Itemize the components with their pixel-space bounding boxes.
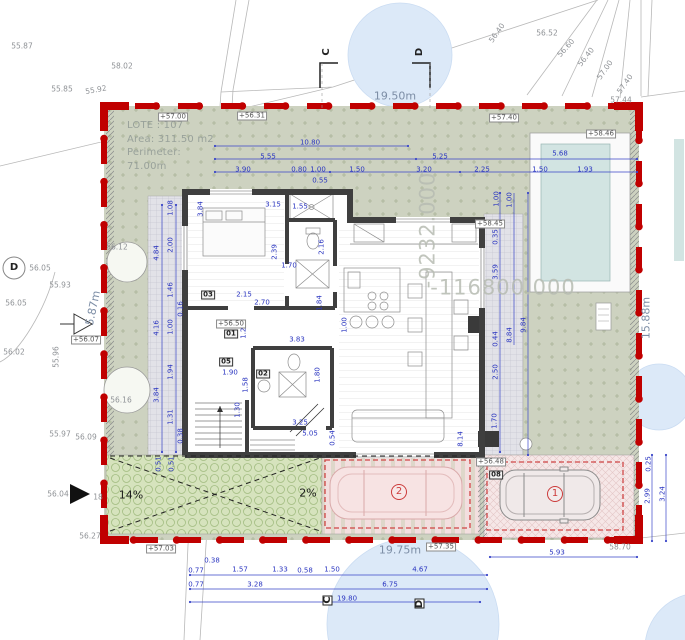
lot-perimeter-label: Perimeter:	[127, 146, 214, 160]
benchmark-icon	[60, 314, 92, 334]
tree-icon	[107, 242, 147, 282]
side-walkway	[148, 196, 183, 455]
lot-area: Area: 311.50 m2	[127, 133, 214, 147]
lot-info: LOTE : 107 Area: 311.50 m2 Perimeter: 71…	[127, 119, 214, 173]
outdoor-sink	[520, 438, 532, 450]
parking-divider-wall	[478, 455, 487, 538]
car-2	[330, 467, 462, 519]
building-footprint	[182, 189, 532, 458]
tree-icon	[645, 593, 685, 640]
bed	[203, 208, 265, 256]
rear-deck	[484, 214, 523, 455]
pool-water	[541, 144, 610, 281]
neighbor-pool	[673, 138, 685, 262]
car-1	[500, 467, 600, 523]
entry-arrow-icon	[70, 484, 90, 504]
grid-bubble-d	[3, 257, 25, 279]
lot-title: LOTE : 107	[127, 119, 214, 133]
site-plan-canvas: LOTE : 107 Area: 311.50 m2 Perimeter: 71…	[0, 0, 685, 640]
outdoor-shower	[596, 303, 611, 330]
tree-icon	[348, 3, 452, 107]
tree-icon	[104, 367, 150, 413]
site-plan-drawing	[0, 0, 685, 640]
lot-perimeter-value: 71.00m	[127, 160, 214, 174]
